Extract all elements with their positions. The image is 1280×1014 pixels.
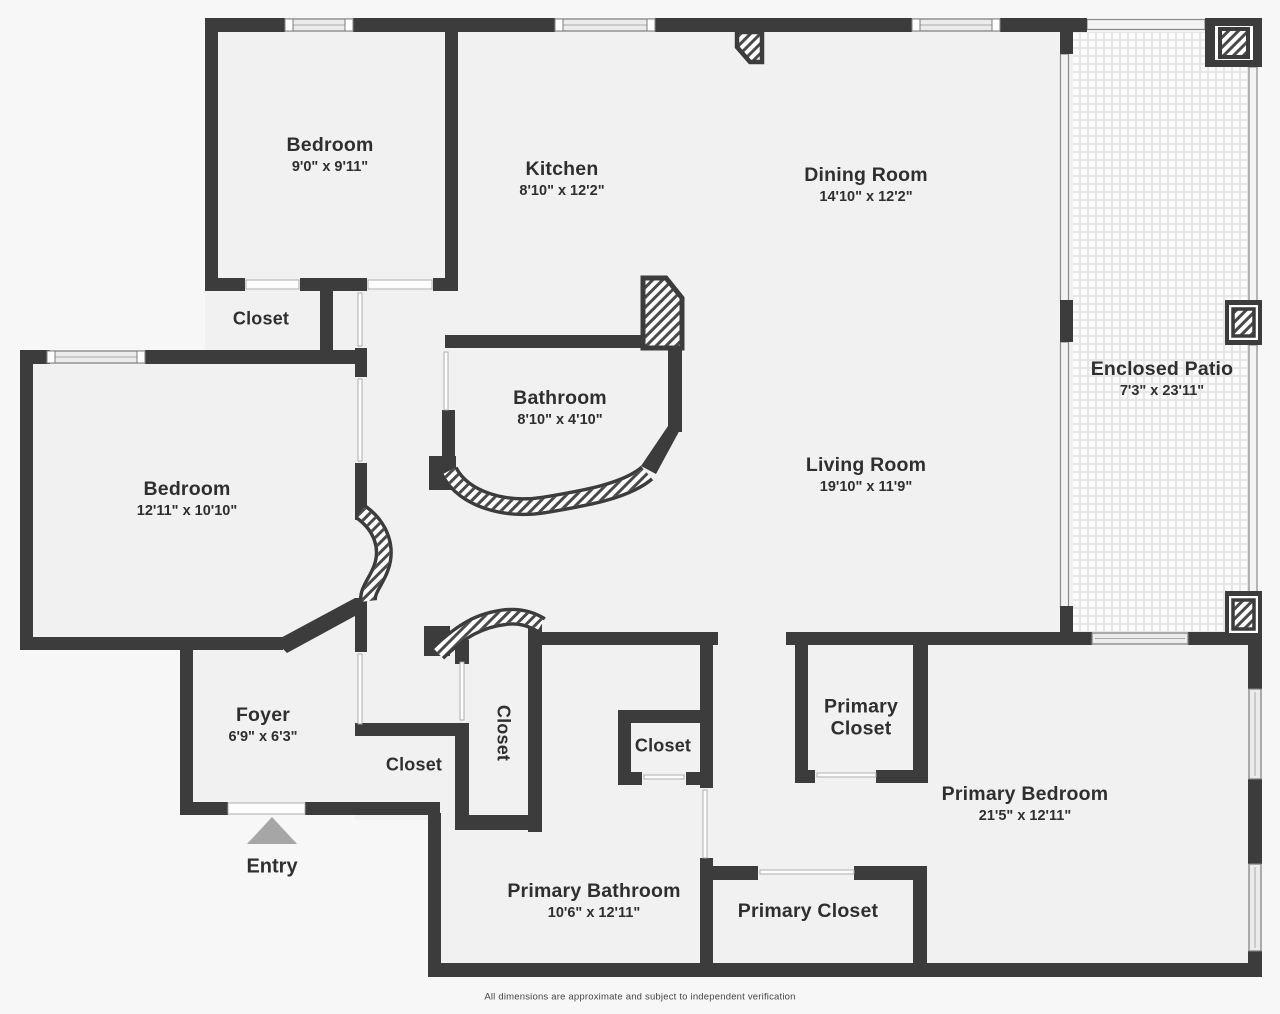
room-label-primary-bedroom: Primary Bedroom 21'5" x 12'11" [942,783,1109,825]
entry-arrow-icon [247,817,297,844]
room-label-kitchen: Kitchen 8'10" x 12'2" [519,158,604,200]
disclaimer-text: All dimensions are approximate and subje… [484,992,795,1003]
entry-label: Entry [246,856,297,879]
room-label-closet-hall: Closet [493,705,514,761]
room-label-dining-room: Dining Room 14'10" x 12'2" [804,164,928,206]
room-label-primary-bathroom: Primary Bathroom 10'6" x 12'11" [507,880,680,922]
room-label-bedroom-topleft: Bedroom 9'0" x 9'11" [287,134,374,176]
floor-plan-page: Bedroom 9'0" x 9'11" Kitchen 8'10" x 12'… [0,0,1280,1014]
enclosed-patio-floor [1073,32,1250,632]
room-label-primary-closet-bottom: Primary Closet [738,900,878,922]
room-label-closet-foyer: Closet [386,755,442,776]
room-label-living-room: Living Room 19'10" x 11'9" [806,454,926,496]
room-label-bathroom: Bathroom 8'10" x 4'10" [513,387,607,429]
room-label-bedroom-left: Bedroom 12'11" x 10'10" [137,478,237,520]
room-label-enclosed-patio: Enclosed Patio 7'3" x 23'11" [1091,358,1234,400]
room-label-closet-topleft: Closet [233,309,289,330]
room-label-foyer: Foyer 6'9" x 6'3" [228,704,297,746]
room-label-primary-closet-top: Primary Closet [797,696,925,741]
room-label-closet-bath: Closet [635,736,691,757]
